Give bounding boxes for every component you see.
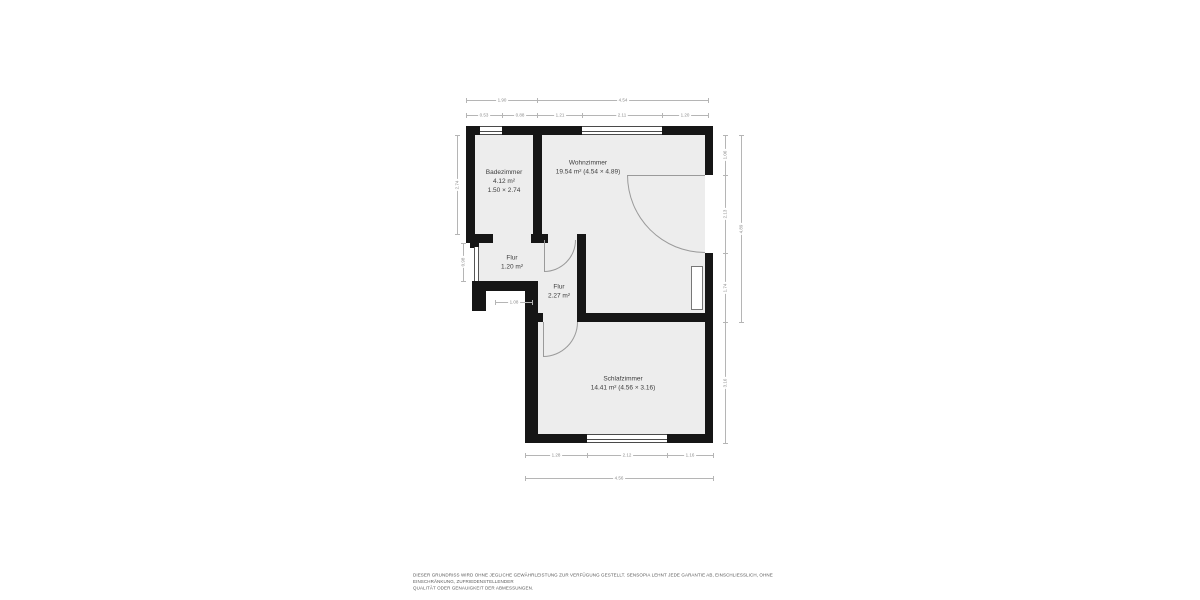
floorplan-canvas: Badezimmer4.12 m²1.50 × 2.74Wohnzimmer19… — [0, 0, 1200, 600]
window-badezimmer — [480, 126, 502, 135]
dimension-tick — [461, 243, 466, 244]
wall-right-lower — [705, 253, 713, 443]
dimension-label: 2.11 — [616, 113, 627, 118]
floorplan: Badezimmer4.12 m²1.50 × 2.74Wohnzimmer19… — [0, 0, 1200, 600]
wall-flur-wohn-divider — [577, 234, 586, 322]
dimension-tick — [708, 98, 709, 103]
dimension-label: 2.12 — [621, 453, 633, 458]
dimension-tick — [525, 476, 526, 481]
dimension-label: 4.56 — [613, 476, 625, 481]
window-schlafzimmer — [587, 434, 667, 443]
dimension-tick — [708, 113, 709, 118]
dimension-label: 4.54 — [617, 98, 629, 103]
wall-top-mid — [502, 126, 582, 135]
wall-schlaf-bottom-left — [525, 434, 587, 443]
room-label-flur-2: Flur2.27 m² — [548, 282, 570, 300]
dimension-tick — [537, 98, 538, 103]
window-wohnzimmer — [582, 126, 662, 135]
wall-top-left — [466, 126, 480, 135]
dimension-tick — [495, 300, 496, 305]
wall-top-right — [662, 126, 713, 135]
dimension-label: 2.74 — [455, 179, 460, 191]
dimension-tick — [502, 113, 503, 118]
wall-bad-wohn-divider — [533, 135, 542, 243]
wall-entry-bottom — [472, 281, 538, 291]
door-leaf-wohnzimmer — [544, 240, 545, 272]
dimension-tick — [466, 98, 467, 103]
dimension-tick — [723, 175, 728, 176]
wall-schlaf-top-left — [538, 313, 543, 322]
wall-schlaf-top-right — [578, 313, 705, 322]
radiator — [691, 266, 703, 310]
dimension-tick — [455, 135, 460, 136]
dimension-tick — [455, 234, 460, 235]
dimension-tick — [739, 322, 744, 323]
dimension-label: 1.90 — [496, 98, 508, 103]
door-leaf-balcony — [627, 175, 705, 176]
dimension-tick — [461, 281, 466, 282]
dimension-tick — [667, 453, 668, 458]
dimension-tick — [723, 135, 728, 136]
door-leaf-schlafzimmer — [543, 322, 544, 357]
wall-right-upper — [705, 135, 713, 175]
dimension-label: 1.74 — [723, 282, 728, 294]
dimension-label: 3.16 — [723, 377, 728, 389]
dimension-tick — [723, 253, 728, 254]
dimension-tick — [713, 453, 714, 458]
dimension-label: 1.06 — [723, 149, 728, 161]
dimension-label: 4.89 — [739, 223, 744, 235]
wall-schlaf-bottom-right — [667, 434, 713, 443]
dimension-label: 2.13 — [723, 208, 728, 220]
room-label-wohnzimmer: Wohnzimmer19.54 m² (4.54 × 4.89) — [556, 158, 621, 176]
dimension-label: 1.21 — [554, 113, 566, 118]
dimension-tick — [723, 443, 728, 444]
dimension-label: 1.20 — [679, 113, 691, 118]
dimension-label: 1.16 — [684, 453, 696, 458]
dimension-tick — [537, 113, 538, 118]
dimension-tick — [582, 113, 583, 118]
entry-door — [474, 247, 479, 281]
dimension-label: 0.53 — [478, 113, 490, 118]
dimension-tick — [713, 476, 714, 481]
disclaimer-line-1: DIESER GRUNDRISS WIRD OHNE JEGLICHE GEWÄ… — [413, 572, 803, 585]
room-label-flur-1: Flur1.20 m² — [501, 253, 523, 271]
floor-doorway-schlaf — [543, 313, 578, 322]
dimension-tick — [723, 322, 728, 323]
dimension-tick — [525, 453, 526, 458]
dimension-label: 0.98 — [461, 256, 466, 268]
floor-wohnzimmer-lower — [586, 242, 705, 313]
dimension-label: 0.88 — [514, 113, 526, 118]
dimension-label: 1.28 — [550, 453, 562, 458]
disclaimer: DIESER GRUNDRISS WIRD OHNE JEGLICHE GEWÄ… — [413, 572, 803, 592]
dimension-label: 1.08 — [508, 300, 520, 305]
wall-schlaf-left — [525, 291, 538, 443]
floor-doorway-bad — [493, 234, 531, 243]
room-label-schlafzimmer: Schlafzimmer14.41 m² (4.56 × 3.16) — [591, 374, 656, 392]
dimension-tick — [662, 113, 663, 118]
dimension-tick — [739, 135, 744, 136]
dimension-tick — [466, 113, 467, 118]
dimension-tick — [587, 453, 588, 458]
wall-entry-stub — [472, 291, 486, 311]
disclaimer-line-2: QUALITÄT ODER GENAUIGKEIT DER ABMESSUNGE… — [413, 585, 803, 592]
dimension-tick — [532, 300, 533, 305]
wall-bad-bottom-left — [466, 234, 493, 243]
wall-left-bad — [466, 135, 475, 243]
room-label-badezimmer: Badezimmer4.12 m²1.50 × 2.74 — [486, 168, 522, 195]
